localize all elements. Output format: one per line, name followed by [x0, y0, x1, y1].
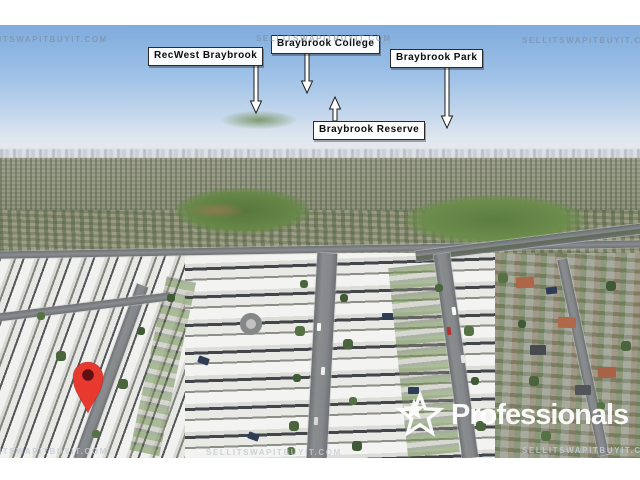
watermark: LLITSWAPITBUYIT.COM — [0, 35, 108, 44]
terracotta-roof — [598, 367, 616, 379]
watermark: SELLITSWAPITBUYIT.C — [522, 36, 640, 45]
street-trees — [0, 25, 2, 27]
cul-de-sac — [240, 313, 262, 335]
watermark: SELLITSWAPITBUYIT.COM — [256, 34, 392, 43]
terracotta-roof — [558, 317, 576, 329]
solar-panel — [546, 286, 558, 294]
callout-recwest-braybrook: RecWest Braybrook — [148, 47, 263, 66]
sports-field — [190, 203, 244, 218]
star-icon — [394, 389, 446, 441]
watermark: LLITSWAPITBUYIT.COM — [0, 447, 108, 456]
car — [317, 323, 321, 331]
terracotta-roof — [516, 277, 535, 289]
watermark: SELLITSWAPITBUYIT.C — [522, 446, 640, 455]
callout-label: Braybrook Park — [396, 52, 477, 63]
watermark: SELLITSWAPITBUYIT.COM — [206, 448, 342, 457]
recwest-green-area — [222, 111, 296, 129]
professionals-logo: Professionals — [394, 386, 628, 444]
callout-braybrook-park: Braybrook Park — [390, 49, 483, 68]
car — [321, 367, 325, 375]
solar-panel — [382, 313, 393, 320]
logo-text: Professionals — [451, 399, 628, 432]
real-estate-aerial-screenshot: RecWest Braybrook Braybrook College Bray… — [0, 0, 640, 480]
callout-label: Braybrook Reserve — [319, 124, 419, 135]
car — [314, 417, 318, 425]
dark-roof — [530, 345, 546, 355]
callout-label: RecWest Braybrook — [154, 50, 257, 61]
callout-braybrook-reserve: Braybrook Reserve — [313, 121, 425, 140]
